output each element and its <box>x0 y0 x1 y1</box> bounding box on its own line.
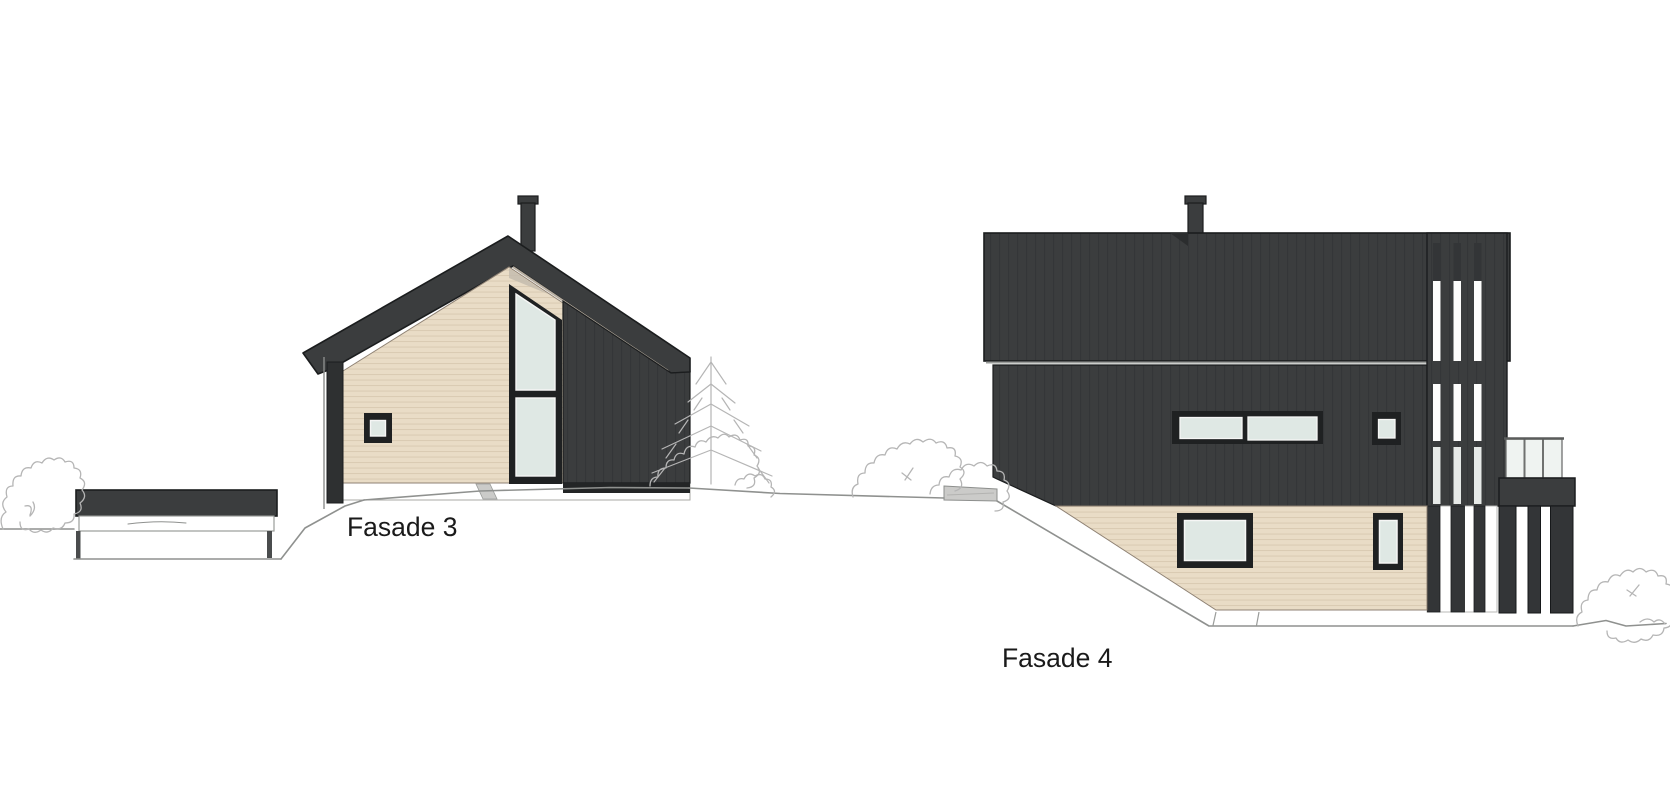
house2-basement-window-large <box>1177 513 1253 568</box>
outbuilding-post-right <box>267 531 272 558</box>
house2-carport-slats <box>1499 506 1573 613</box>
elevation-drawing-canvas: Fasade 3 <box>0 0 1670 800</box>
fasade-4-label: Fasade 4 <box>1002 643 1113 673</box>
house1-tall-window-lower-pane <box>516 398 555 476</box>
house2-recess-slats <box>1428 506 1486 612</box>
house2-balcony-railing <box>1504 439 1564 479</box>
house1-corner-board <box>327 362 343 503</box>
outbuilding-post-left <box>76 531 81 559</box>
house2-band-window <box>1172 411 1323 444</box>
house1-chimney <box>518 196 538 251</box>
outbuilding-fascia <box>79 516 274 531</box>
outbuilding-roof-band <box>76 490 277 516</box>
house1-small-window <box>364 413 392 443</box>
house2-carport-header <box>1499 478 1575 506</box>
fasade-3-label: Fasade 3 <box>347 512 458 542</box>
house2-chimney <box>1185 196 1206 235</box>
house2-basement-window-small <box>1373 513 1403 570</box>
house2-small-square-window <box>1372 412 1401 445</box>
